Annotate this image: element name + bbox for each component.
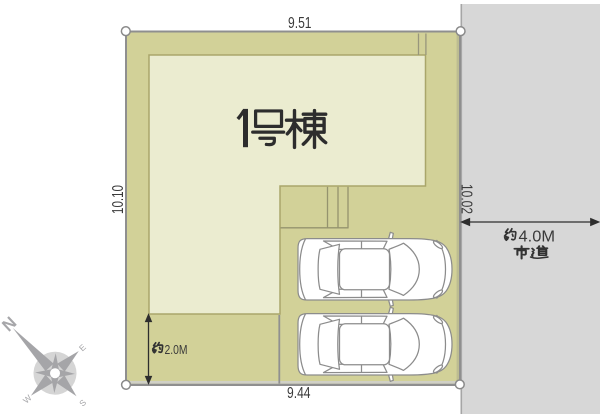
- svg-text:10.02: 10.02: [458, 184, 475, 214]
- svg-text:9.44: 9.44: [287, 385, 311, 402]
- svg-text:2.0M: 2.0M: [165, 342, 188, 357]
- svg-text:4.0M: 4.0M: [519, 228, 556, 245]
- svg-text:S: S: [77, 397, 88, 408]
- svg-text:E: E: [77, 342, 88, 353]
- svg-text:9.51: 9.51: [288, 15, 312, 32]
- svg-text:10.10: 10.10: [110, 185, 127, 214]
